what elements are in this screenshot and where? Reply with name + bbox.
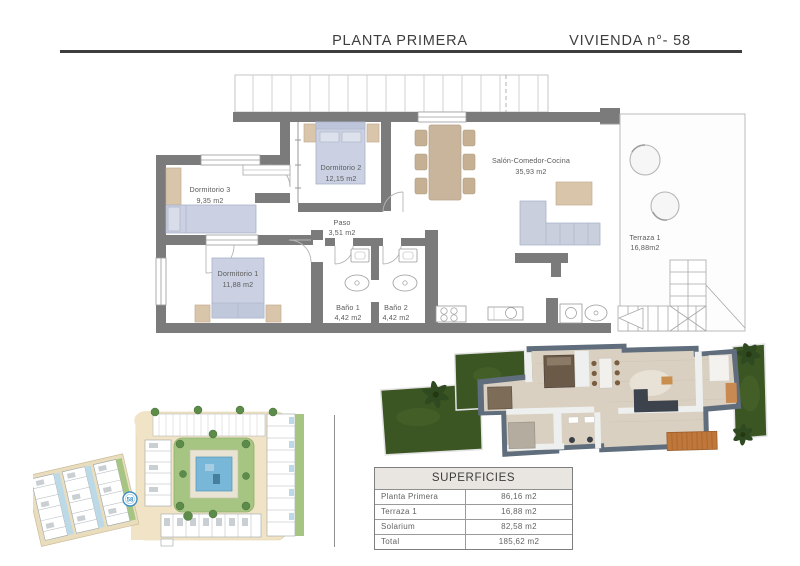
table-row: Terraza 1 16,88 m2 [375,505,572,520]
row-value: 82,58 m2 [466,520,572,534]
page: PLANTA PRIMERA VIVIENDA n°- 58 [0,0,800,566]
pergola-hatch [235,75,548,112]
room-area-dormitorio1: 11,88 m2 [223,280,254,289]
page-title: PLANTA PRIMERA [290,33,510,49]
row-label: Solarium [375,520,466,534]
row-value: 16,88 m2 [466,505,572,519]
render-3d [378,343,768,463]
row-label: Total [375,535,466,549]
table-row: Solarium 82,58 m2 [375,520,572,535]
render-stairs [667,431,717,450]
room-area-paso: 3,51 m2 [328,228,355,237]
row-value: 185,62 m2 [466,535,572,549]
room-area-dormitorio3: 9,35 m2 [196,196,223,205]
room-label-salon: Salón-Comedor-Cocina [492,156,570,165]
table-row: Total 185,62 m2 [375,535,572,549]
surfaces-table-title: SUPERFICIES [375,468,572,490]
site-marker-label: 58 [127,498,134,504]
room-label-dormitorio3: Dormitorio 3 [190,185,231,194]
room-label-bano1: Baño 1 [336,303,360,312]
floor-plan: Dormitorio 3 9,35 m2 Dormitorio 2 12,15 … [148,70,755,342]
room-area-bano2: 4,42 m2 [382,313,409,322]
site-marker-58: 58 [123,492,137,506]
room-label-dormitorio1: Dormitorio 1 [218,269,259,278]
row-value: 86,16 m2 [466,490,572,504]
room-area-terraza: 16,88m2 [630,243,659,252]
room-area-salon: 35,93 m2 [515,167,546,176]
room-label-dormitorio2: Dormitorio 2 [321,163,362,172]
room-label-bano2: Baño 2 [384,303,408,312]
site-right-buildings [267,414,304,536]
site-inner-buildings [145,440,171,506]
unit-number: VIVIENDA n°- 58 [555,33,705,49]
divider-line [334,415,335,547]
row-label: Planta Primera [375,490,466,504]
room-area-dormitorio2: 12,15 m2 [325,174,356,183]
table-row: Planta Primera 86,16 m2 [375,490,572,505]
room-area-bano1: 4,42 m2 [334,313,361,322]
site-plan: 58 [33,404,311,548]
room-label-terraza: Terraza 1 [629,233,660,242]
site-entrance-pad [161,539,173,546]
surfaces-table: SUPERFICIES Planta Primera 86,16 m2 Terr… [374,467,573,550]
room-label-paso: Paso [334,218,351,227]
header-rule [60,50,742,53]
row-label: Terraza 1 [375,505,466,519]
